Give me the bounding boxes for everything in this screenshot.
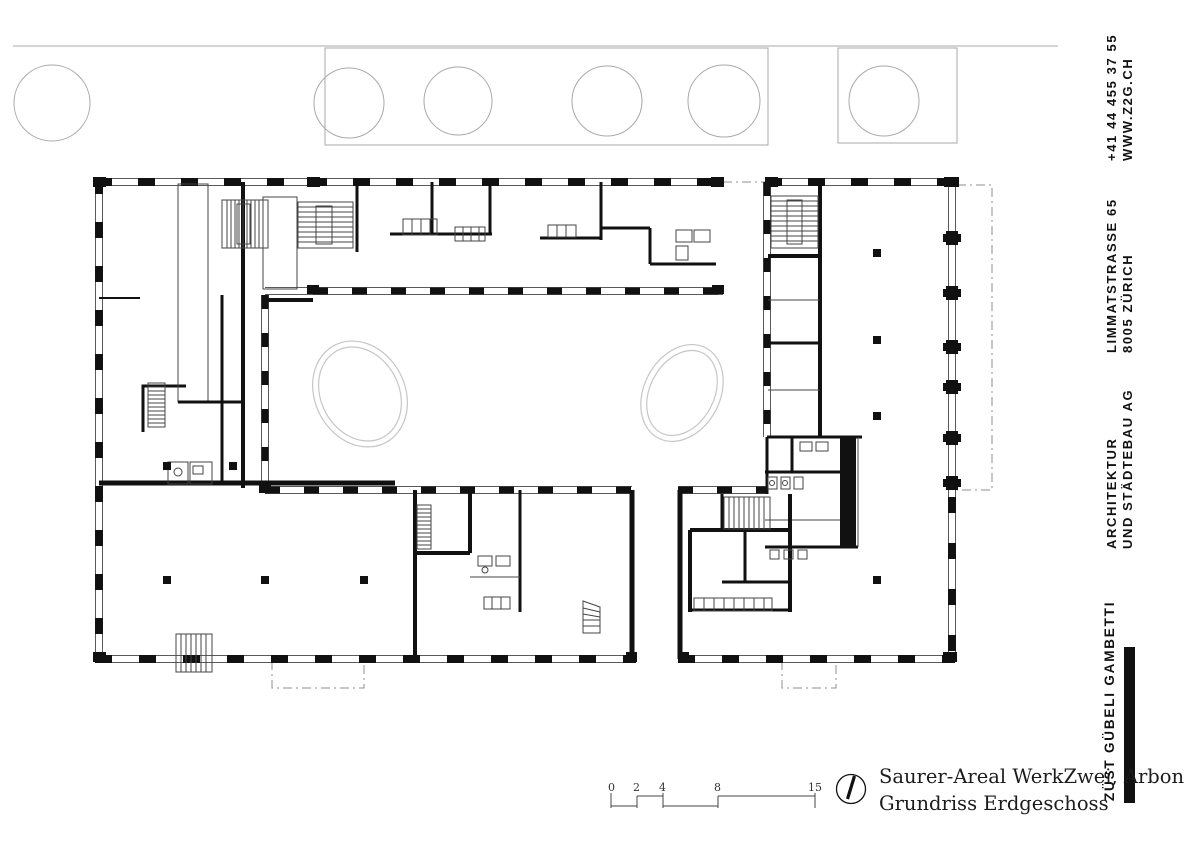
phone-number: +41 44 455 37 55 xyxy=(1104,34,1120,161)
drawing-sheet: 0 2 4 8 15 +41 44 455 37 55 WWW.Z2G.CH L… xyxy=(0,0,1200,848)
floor-plan: 0 2 4 8 15 xyxy=(0,0,1200,848)
stairs xyxy=(148,196,818,672)
scale-label-8: 8 xyxy=(714,781,721,794)
stair-north-bar xyxy=(298,202,353,248)
sidebar-contact: +41 44 455 37 55 WWW.Z2G.CH xyxy=(1104,34,1136,161)
scale-label-0: 0 xyxy=(608,781,615,794)
stair-exterior-south xyxy=(176,634,212,672)
stair-left-wing-mid xyxy=(148,383,165,427)
street: LIMMATSTRASSE 65 xyxy=(1104,198,1120,353)
firm-type-line2: UND STÄDTEBAU AG xyxy=(1120,389,1136,549)
stair-bottom-right xyxy=(724,497,770,529)
city: 8005 ZÜRICH xyxy=(1120,198,1136,353)
project-title: Saurer-Areal WerkZwei, Arbon xyxy=(879,763,1184,790)
title-block: Saurer-Areal WerkZwei, Arbon Grundriss E… xyxy=(879,763,1184,817)
scale-label-4: 4 xyxy=(659,781,666,794)
stair-wedge xyxy=(583,601,600,633)
firm-type-line1: ARCHITEKTUR xyxy=(1104,389,1120,549)
site-context xyxy=(13,46,1058,145)
interior-walls xyxy=(99,182,862,660)
drawing-title: Grundriss Erdgeschoss xyxy=(879,790,1184,817)
sidebar-firm-type: ARCHITEKTUR UND STÄDTEBAU AG xyxy=(1104,389,1136,549)
stair-right-wing xyxy=(771,196,818,248)
sidebar-address: LIMMATSTRASSE 65 8005 ZÜRICH xyxy=(1104,198,1136,353)
right-facade-columns xyxy=(943,177,961,490)
north-arrow-icon xyxy=(837,775,866,804)
courtyard-ponds xyxy=(294,324,739,463)
website: WWW.Z2G.CH xyxy=(1120,34,1136,161)
stair-bottom-middle xyxy=(417,505,431,549)
scale-label-2: 2 xyxy=(633,781,640,794)
scale-label-15: 15 xyxy=(808,781,822,794)
scale-bar: 0 2 4 8 15 xyxy=(608,781,822,808)
